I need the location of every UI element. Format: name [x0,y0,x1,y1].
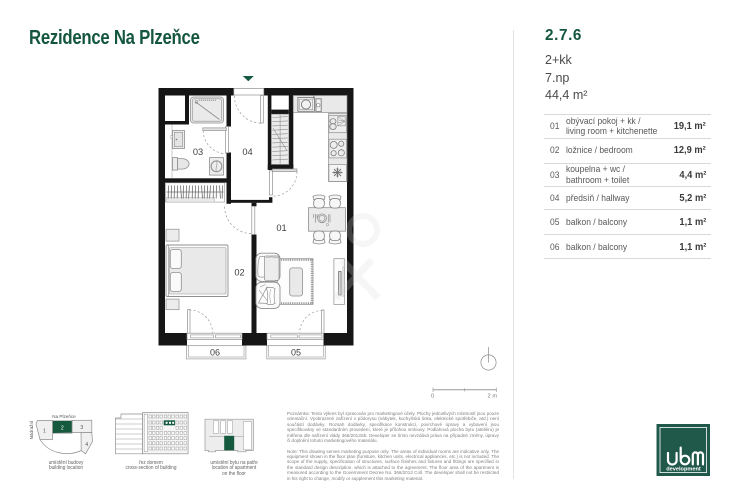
svg-text:06: 06 [210,348,220,358]
svg-text:2 m: 2 m [488,394,498,400]
svg-text:05: 05 [291,348,301,358]
svg-text:03: 03 [193,147,203,157]
svg-text:3: 3 [80,425,83,431]
svg-text:0: 0 [431,394,434,400]
svg-text:4: 4 [85,442,88,448]
svg-text:1: 1 [43,428,46,434]
svg-text:04: 04 [242,147,252,157]
svg-text:2: 2 [61,426,64,432]
svg-text:01: 01 [276,223,286,233]
svg-text:development: development [666,467,701,473]
svg-text:Na Plzeňce: Na Plzeňce [52,414,76,419]
svg-text:Nádražní: Nádražní [29,420,34,439]
svg-text:02: 02 [234,267,244,277]
